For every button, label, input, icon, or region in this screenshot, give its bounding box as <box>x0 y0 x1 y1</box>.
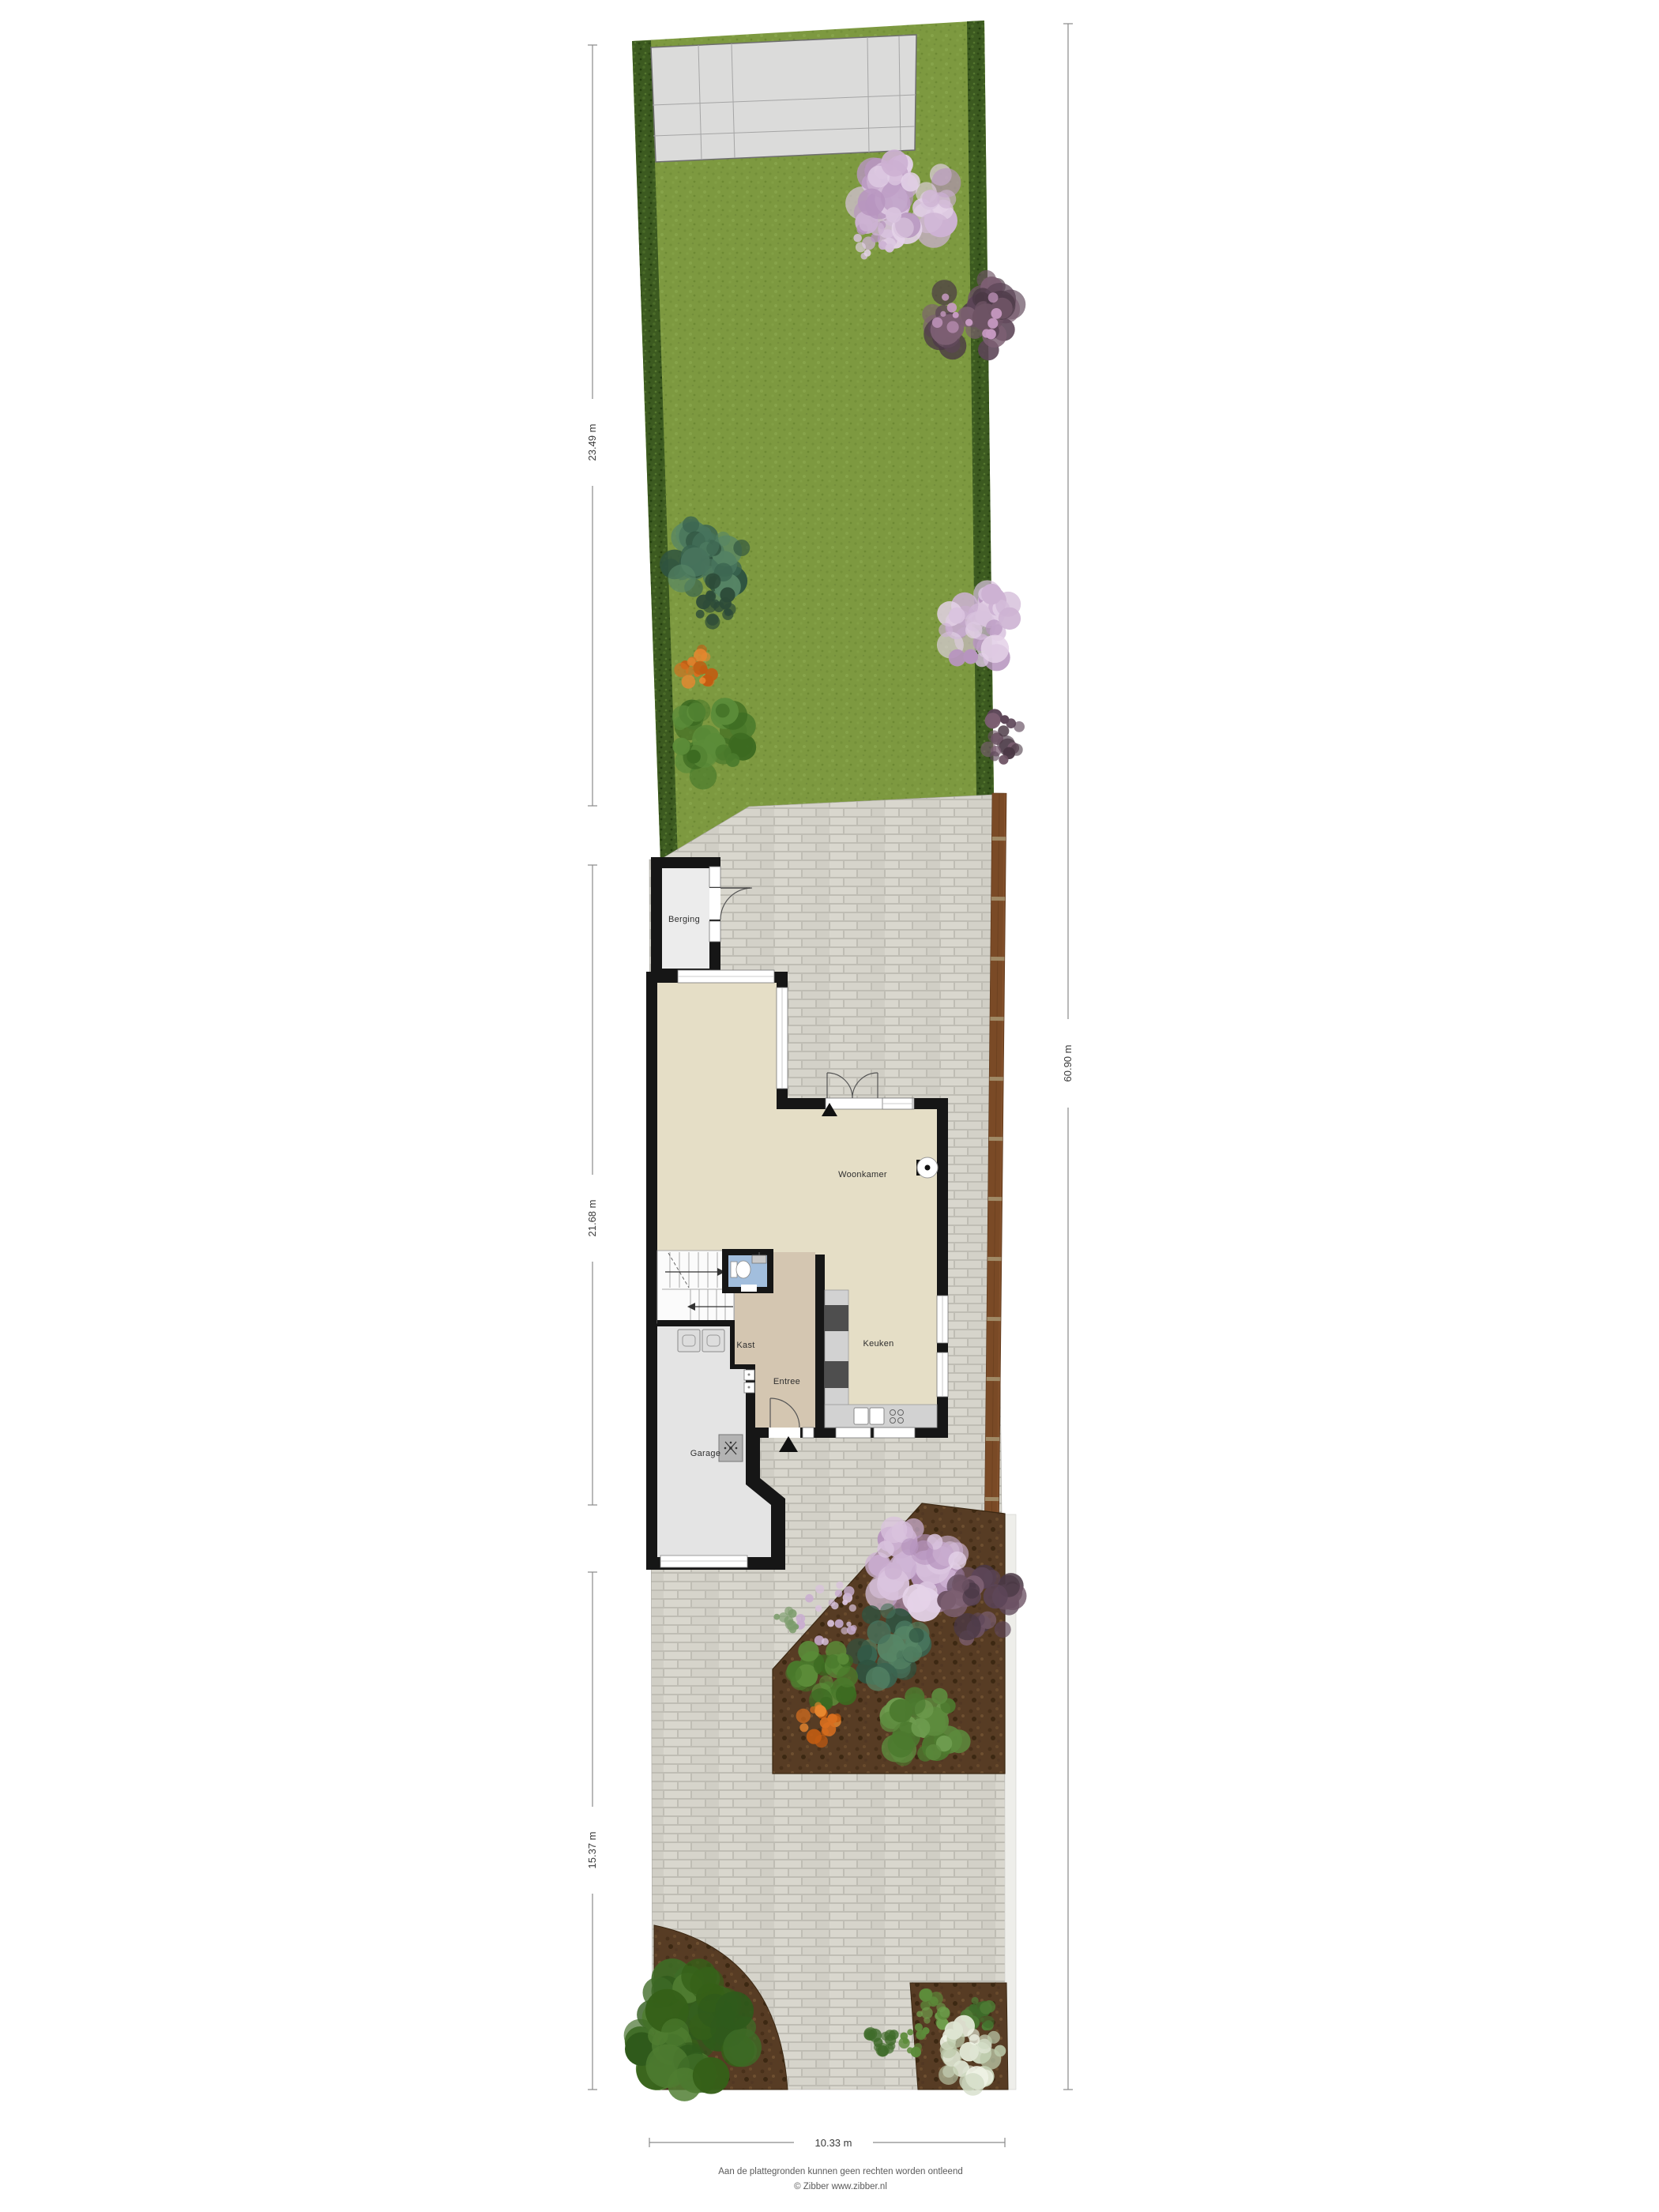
garden-depth-label: 23.49 m <box>586 424 598 461</box>
wall-lamp-icon <box>916 1157 938 1178</box>
driveway-depth-label: 15.37 m <box>586 1832 598 1869</box>
woonkamer-label: Woonkamer <box>838 1170 887 1179</box>
site-plan-drawing: Berging <box>0 0 1659 2212</box>
entree-label: Entree <box>773 1377 800 1386</box>
kitchen-sink-icon <box>854 1408 868 1424</box>
room-bathroom <box>722 1249 773 1293</box>
kast-label: Kast <box>736 1341 754 1350</box>
keuken-label: Keuken <box>863 1339 893 1349</box>
berging-label: Berging <box>668 915 700 924</box>
zibber-credit: © Zibber www.zibber.nl <box>794 2182 887 2191</box>
sink-icon <box>752 1255 766 1263</box>
garage-label: Garage <box>690 1449 721 1458</box>
house-depth-label: 21.68 m <box>586 1200 598 1237</box>
plot-width-label: 10.33 m <box>815 2137 852 2149</box>
garage-door <box>660 1556 747 1567</box>
footer-disclaimer: Aan de plattegronden kunnen geen rechten… <box>718 2167 962 2176</box>
total-depth-label: 60.90 m <box>1062 1045 1074 1082</box>
terrace-tiles <box>651 35 916 162</box>
boiler-icon <box>719 1435 743 1461</box>
site-plan-page: Berging <box>0 0 1659 2212</box>
